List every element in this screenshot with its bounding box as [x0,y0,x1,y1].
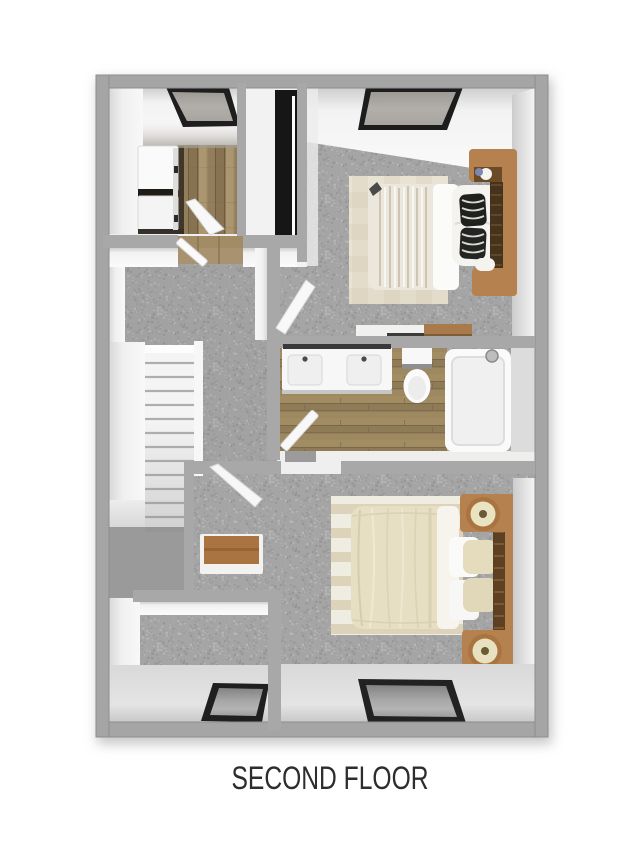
svg-text:SECOND FLOOR: SECOND FLOOR [232,760,429,796]
